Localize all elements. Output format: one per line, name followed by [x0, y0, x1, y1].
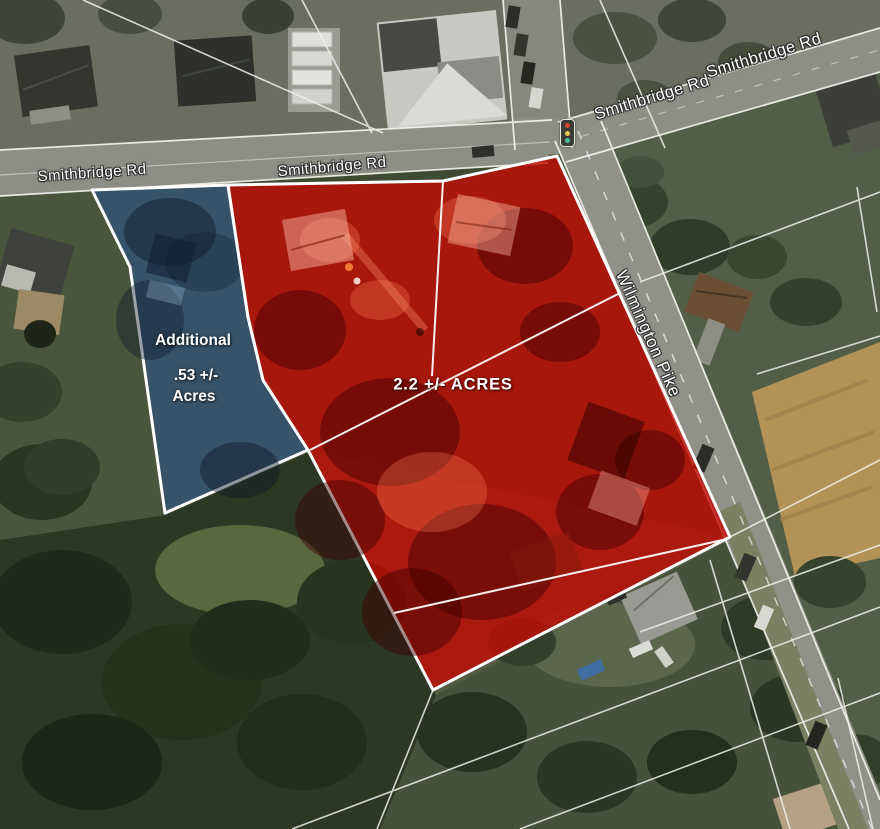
blue-parcel-label-line1: Additional — [155, 332, 231, 350]
aerial-parcel-map: Smithbridge Rd Smithbridge Rd Smithbridg… — [0, 0, 880, 829]
satellite-imagery — [0, 0, 880, 829]
traffic-light-red-dot — [565, 123, 570, 128]
blue-parcel-label-line2: .53 +/- — [174, 367, 218, 385]
red-parcel-acreage-label: 2.2 +/- ACRES — [393, 376, 512, 395]
blue-parcel-label-line3: Acres — [172, 388, 215, 406]
traffic-light-icon — [560, 119, 575, 147]
traffic-light-yellow-dot — [565, 131, 570, 136]
traffic-light-green-dot — [565, 138, 570, 143]
